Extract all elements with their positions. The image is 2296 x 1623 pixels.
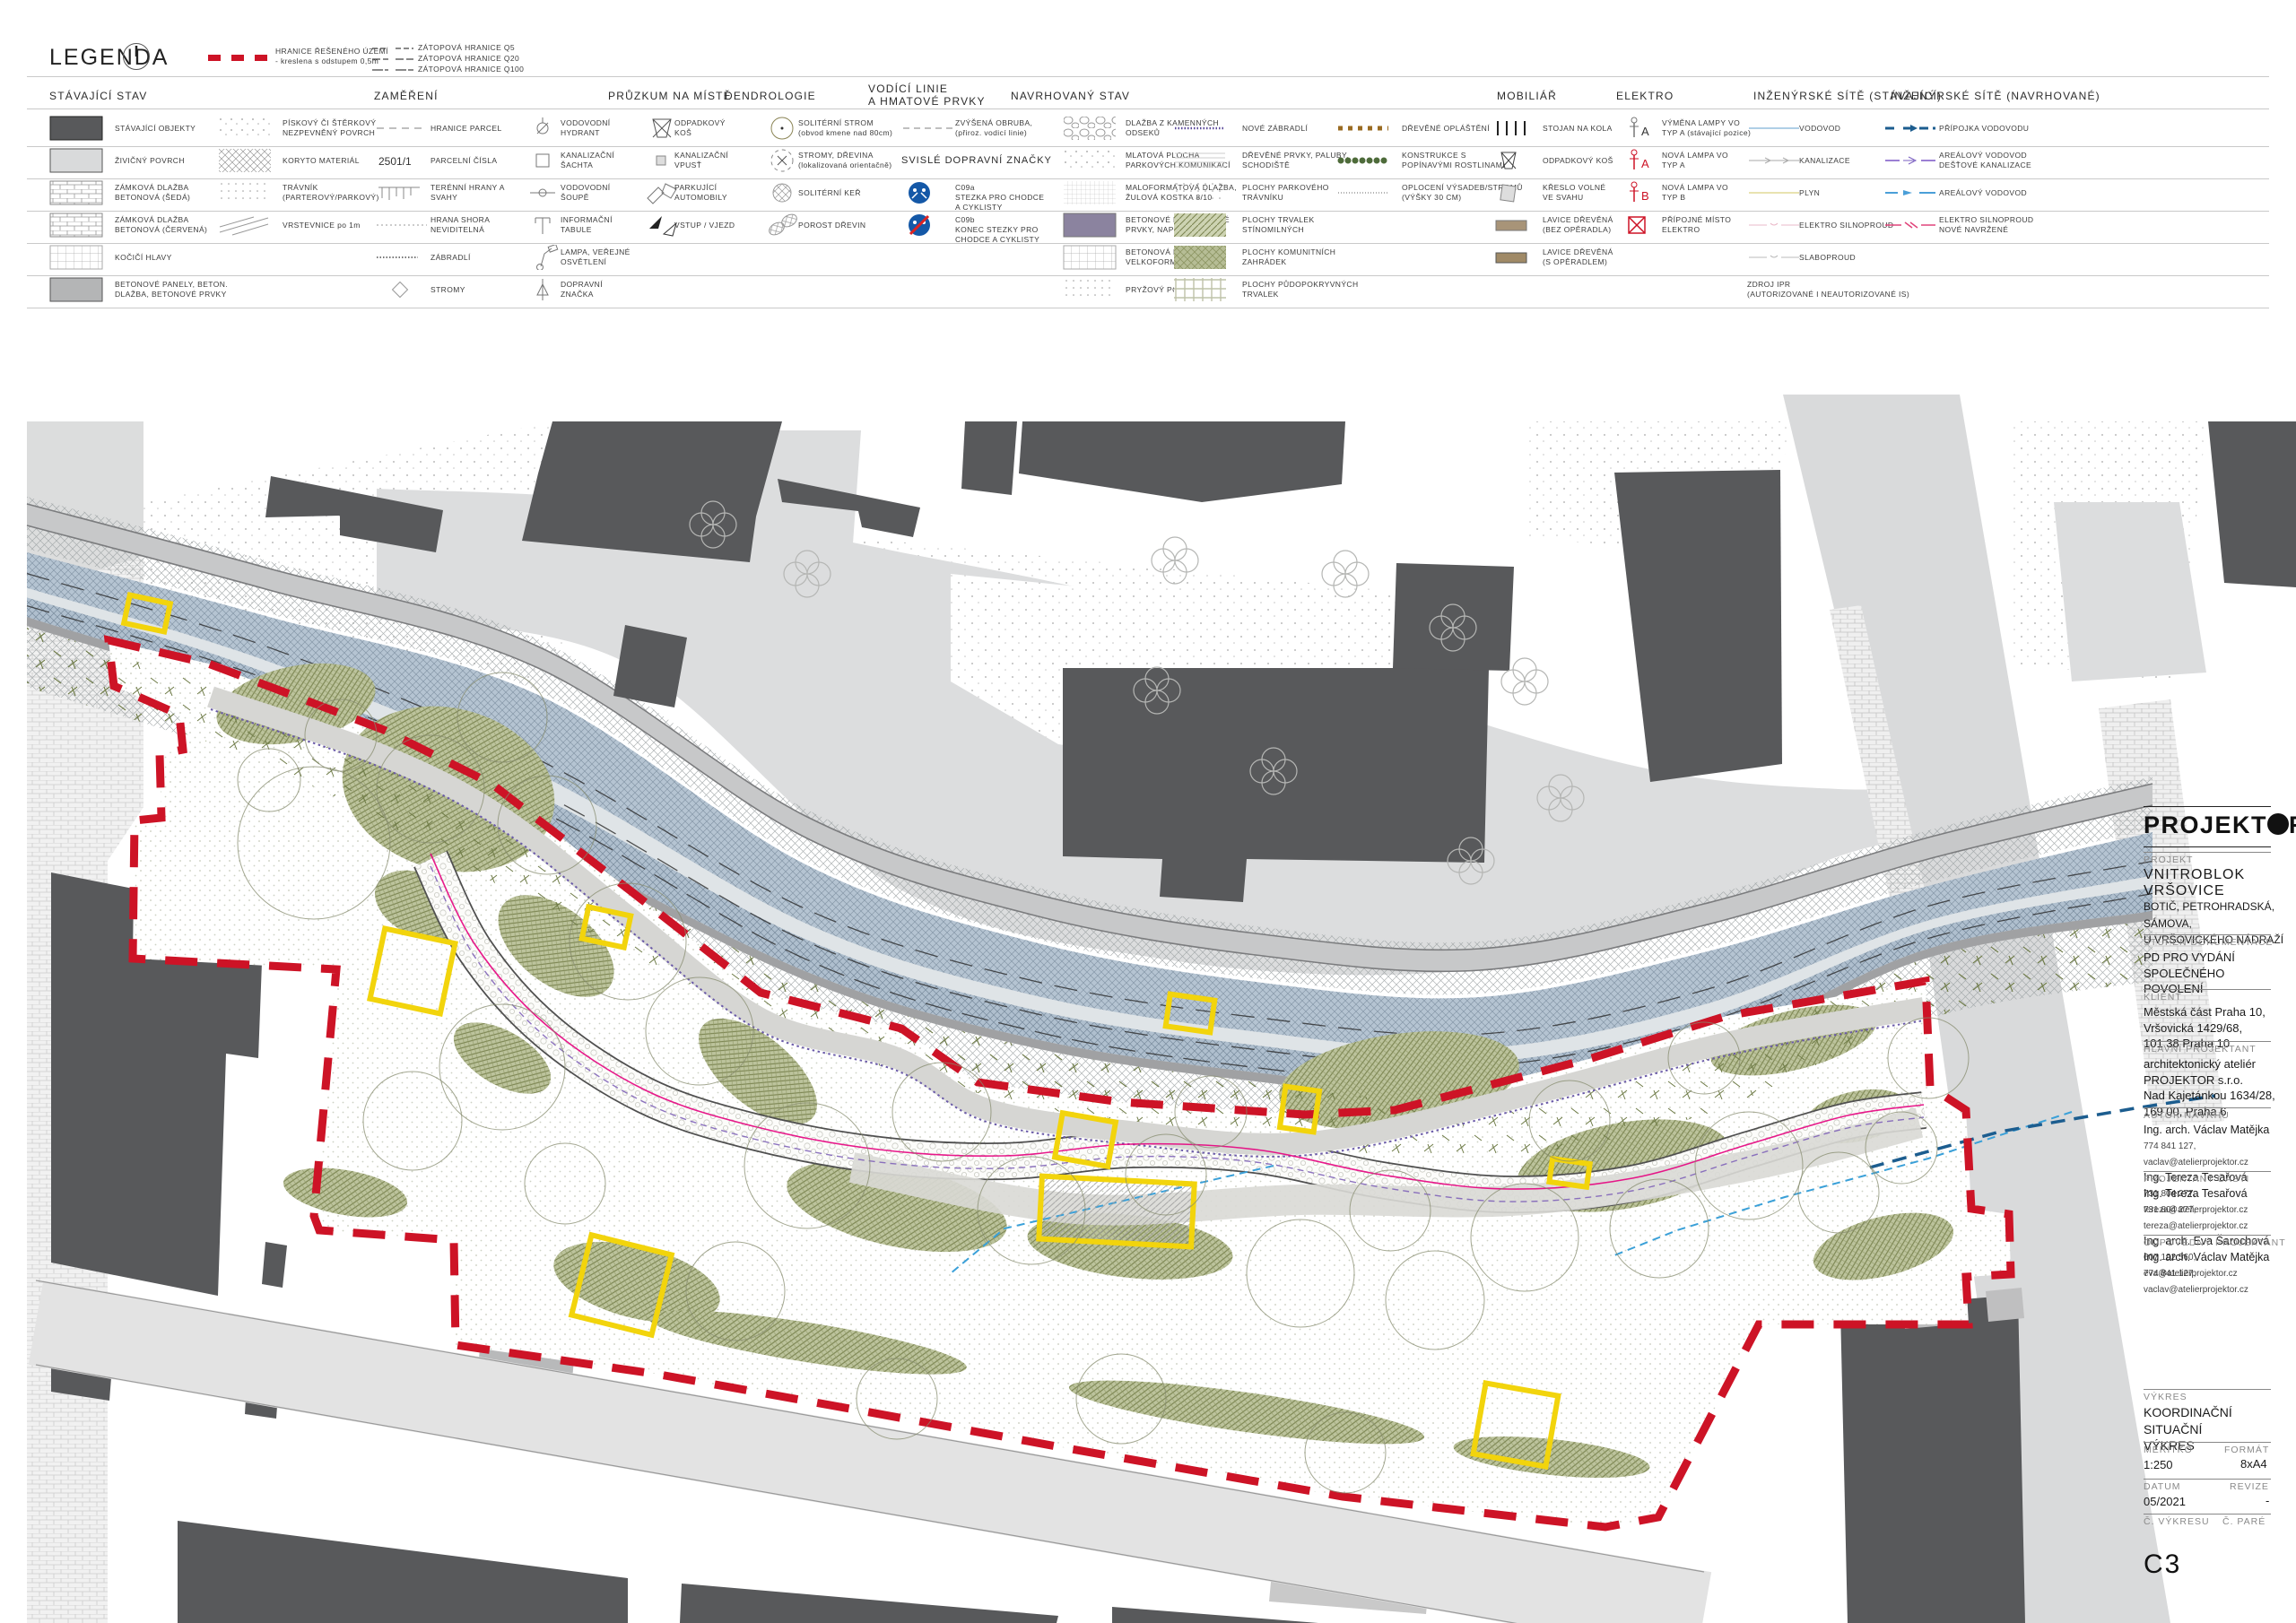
svg-text:A: A bbox=[1641, 157, 1649, 170]
svg-text:B: B bbox=[1641, 189, 1649, 203]
svg-text:A: A bbox=[1641, 125, 1649, 138]
svg-text:2501/1: 2501/1 bbox=[378, 155, 412, 168]
